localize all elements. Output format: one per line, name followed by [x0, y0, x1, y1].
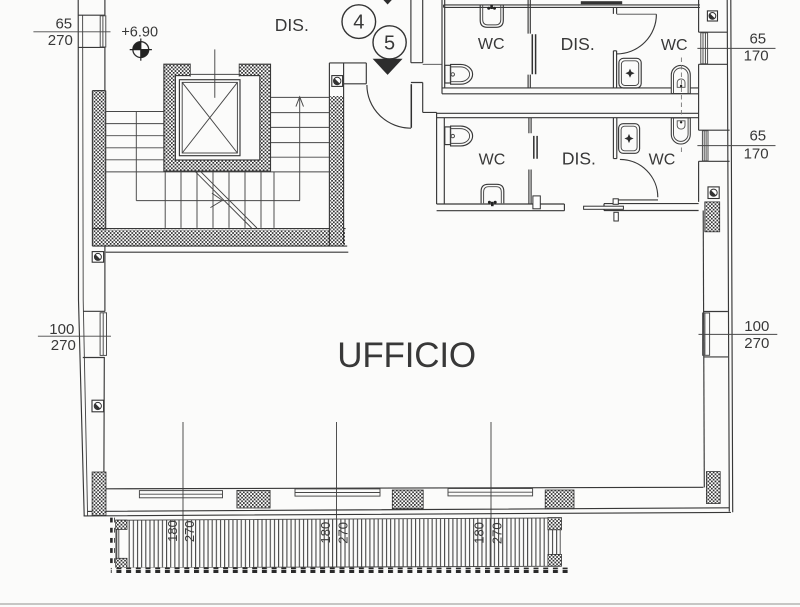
svg-text:270: 270 [51, 337, 76, 354]
svg-text:180: 180 [165, 520, 180, 542]
svg-text:65: 65 [749, 30, 766, 47]
svg-text:4: 4 [353, 12, 364, 34]
svg-text:WC: WC [649, 151, 676, 168]
svg-text:270: 270 [48, 32, 73, 49]
svg-text:170: 170 [744, 146, 769, 163]
svg-text:+6.90: +6.90 [121, 24, 158, 40]
svg-text:270: 270 [744, 335, 769, 352]
svg-text:WC: WC [661, 37, 688, 54]
svg-text:UFFICIO: UFFICIO [337, 336, 476, 375]
svg-text:DIS.: DIS. [561, 34, 595, 54]
svg-text:WC: WC [479, 152, 506, 169]
svg-text:DIS.: DIS. [562, 148, 596, 168]
svg-text:DIS.: DIS. [275, 15, 309, 35]
svg-text:100: 100 [744, 318, 769, 335]
svg-text:180: 180 [318, 522, 333, 544]
svg-text:270: 270 [335, 522, 350, 544]
svg-text:270: 270 [182, 520, 197, 542]
svg-text:65: 65 [749, 128, 766, 145]
svg-text:180: 180 [472, 522, 487, 544]
svg-text:170: 170 [744, 48, 769, 65]
svg-text:270: 270 [490, 522, 505, 544]
svg-text:65: 65 [55, 15, 72, 32]
svg-text:WC: WC [478, 36, 505, 53]
svg-text:5: 5 [384, 32, 395, 54]
svg-text:100: 100 [49, 321, 74, 338]
